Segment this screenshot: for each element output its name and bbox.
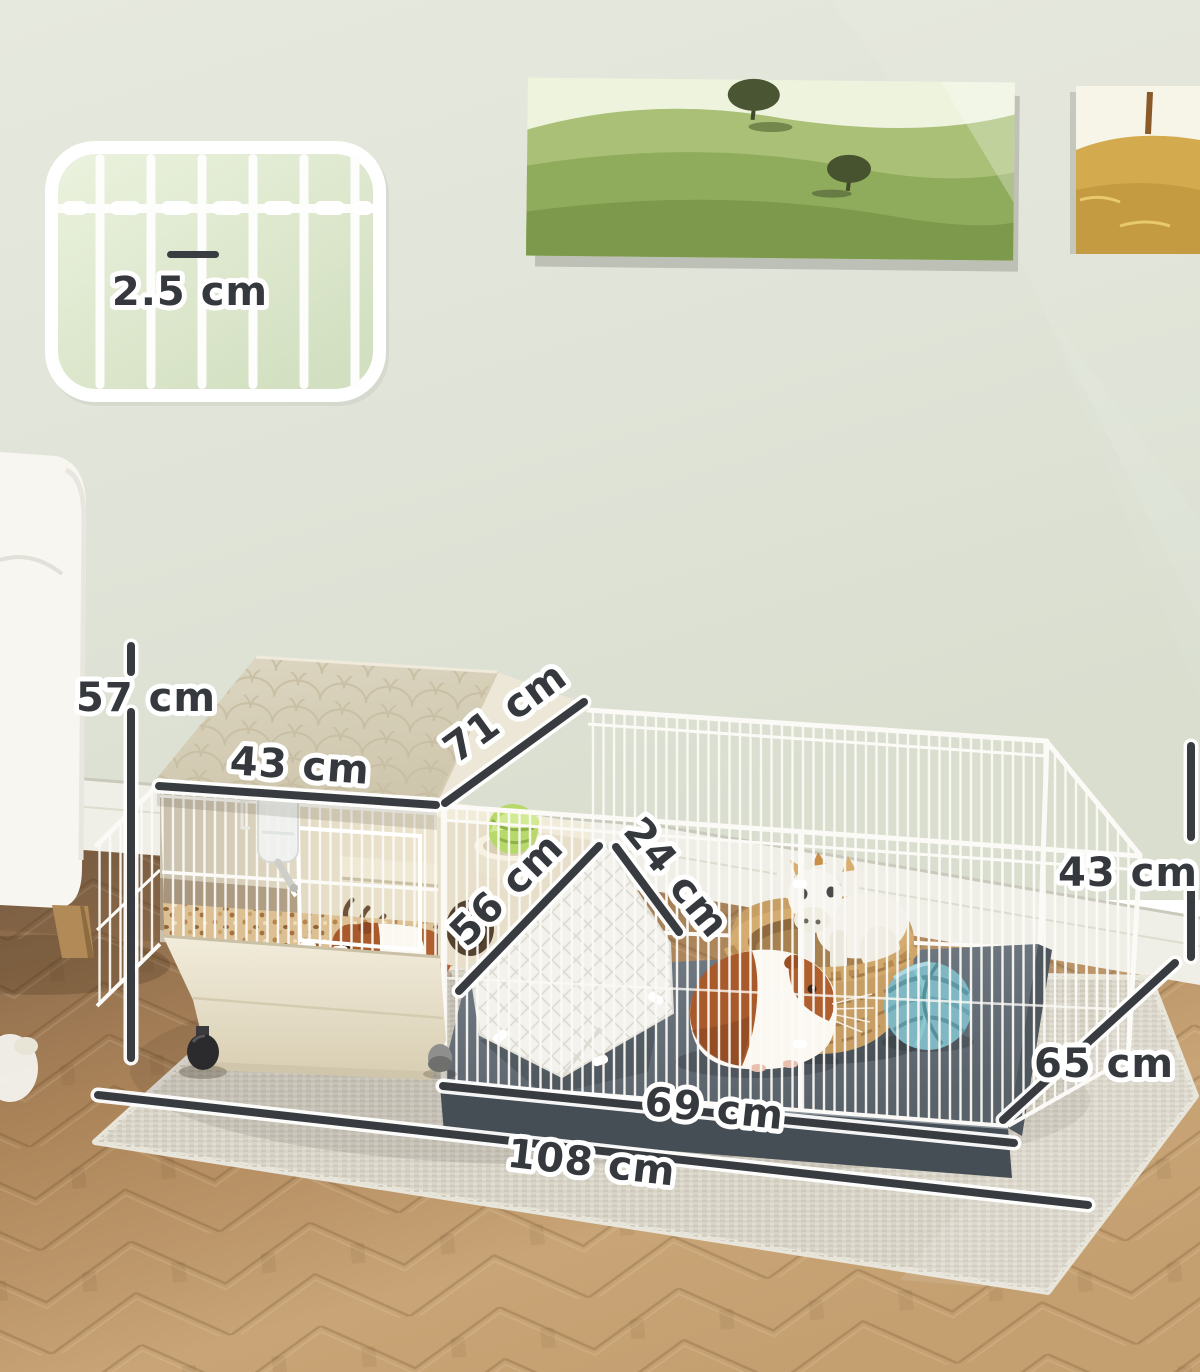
label-inset-bar-spacing: 2.5 cm [112,269,268,315]
hutch-base-tray [163,936,457,1080]
caster-foot [428,1044,452,1072]
label-overall-depth: 65 cm [1034,1041,1174,1087]
wire-bar-spacing-inset: 2.5 cm [45,141,389,406]
inset-measure-tick [167,251,219,258]
label-roof-front-edge: 43 cm [228,738,371,794]
product-dimension-image: 57 cm 43 cm 71 cm 56 cm 24 cm 43 cm 69 c… [0,0,1200,1372]
golden-field-painting [1070,86,1200,254]
label-pen-wall-height: 43 cm [1058,850,1198,896]
green-hills-painting [526,76,1020,271]
label-total-height: 57 cm [76,675,216,721]
